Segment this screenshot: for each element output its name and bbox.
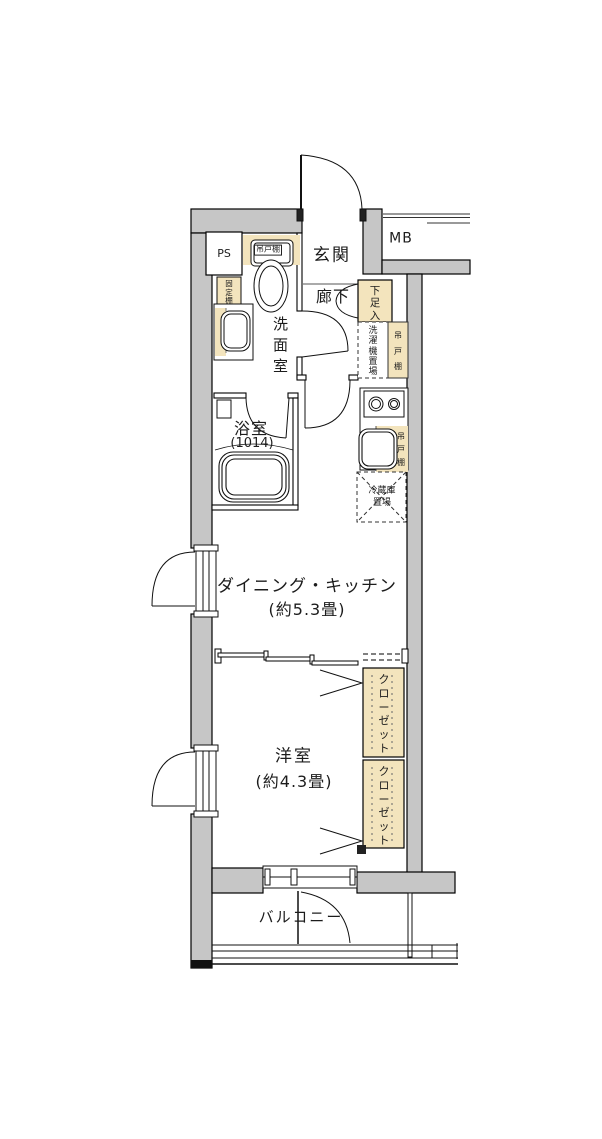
dining-kitchen-size-label: (約5.3畳) — [269, 601, 346, 619]
stove — [364, 391, 404, 417]
washbasin — [214, 304, 253, 360]
dk-window — [152, 545, 218, 617]
balcony-sliding-window — [263, 866, 357, 888]
bathtub — [219, 452, 289, 502]
washroom-door — [302, 311, 348, 357]
entrance-label: 玄関 — [313, 247, 351, 266]
bedroom-window — [152, 745, 218, 817]
pipe-space-label: PS — [217, 248, 231, 260]
kitchen-sink — [359, 429, 397, 469]
left-wall-end-cap — [191, 960, 212, 968]
refrigerator-area-box — [357, 472, 406, 522]
entry-door — [297, 155, 366, 221]
dk-door — [305, 380, 350, 428]
fixed-shelf-label: 固定棚 — [225, 280, 233, 306]
hall-hanging-cupboard-label: 吊戸棚 — [394, 328, 402, 375]
room-partition — [215, 649, 408, 665]
western-room-label: 洋室 — [275, 748, 313, 767]
closet-folding-doors — [320, 670, 362, 854]
closet-corner-block — [357, 845, 366, 854]
closet-lower-label: クローゼット — [379, 765, 390, 848]
washing-machine-label: 洗濯機置場 — [368, 326, 377, 377]
refrigerator-label-2: 置場 — [373, 499, 391, 509]
kitchen-hanging-cupboard-label: 吊戸棚 — [397, 430, 405, 469]
hallway-label: 廊下 — [316, 288, 350, 306]
dining-kitchen-label: ダイニング・キッチン — [217, 578, 397, 597]
refrigerator-label-1: 冷蔵庫 — [368, 487, 395, 497]
meter-box-label: MB — [389, 231, 413, 246]
bathroom-size-label: (1014) — [230, 437, 273, 451]
balcony-label: バルコニー — [259, 909, 344, 926]
balcony-railing — [212, 893, 458, 964]
washroom-hanging-cupboard-label: 吊戸棚 — [254, 245, 282, 256]
western-room-size-label: (約4.3畳) — [256, 773, 333, 791]
washroom-label: 洗面室 — [273, 314, 289, 377]
floorplan-drawing — [0, 0, 602, 1139]
mb-niche-lines — [383, 214, 470, 223]
shoe-cabinet-label: 下足入 — [370, 285, 381, 322]
floorplan: PS MB 玄関 廊下 吊戸棚 固定棚 洗面室 下足入 洗濯機置場 吊戸棚 浴室… — [0, 0, 602, 1139]
closet-upper-label: クローゼット — [379, 673, 390, 756]
